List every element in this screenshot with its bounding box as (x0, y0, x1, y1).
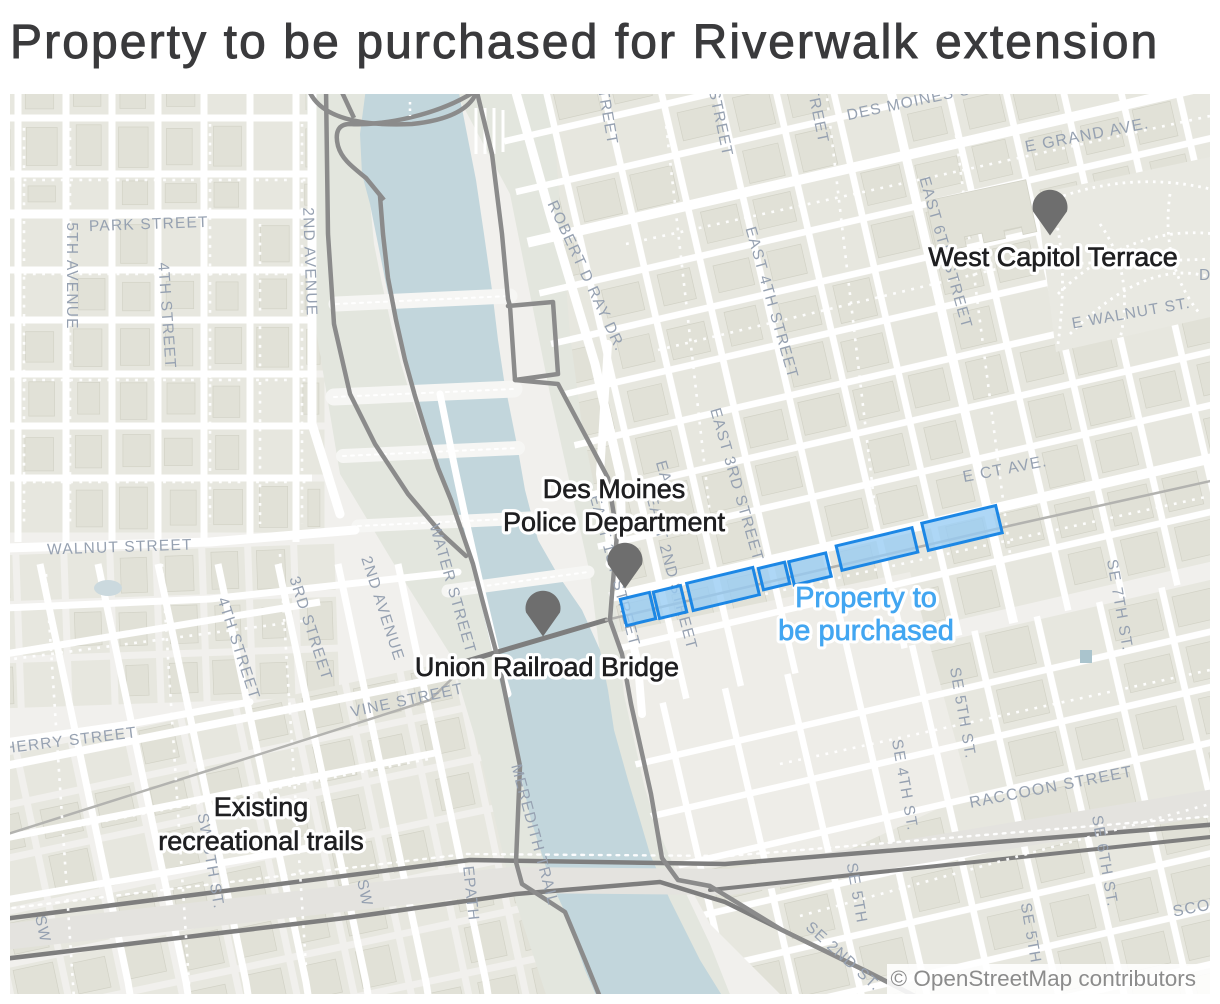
svg-text:West Capitol Terrace: West Capitol Terrace (928, 242, 1178, 272)
svg-text:5TH AVENUE: 5TH AVENUE (63, 222, 80, 329)
svg-text:© OpenStreetMap contributors: © OpenStreetMap contributors (891, 966, 1196, 991)
svg-text:Property to: Property to (795, 582, 937, 614)
svg-text:Existing: Existing (214, 792, 309, 822)
svg-text:recreational trails: recreational trails (158, 826, 364, 856)
svg-text:be purchased: be purchased (778, 615, 954, 647)
svg-text:Union Railroad Bridge: Union Railroad Bridge (415, 652, 679, 682)
svg-text:Des Moines: Des Moines (543, 474, 686, 504)
svg-text:Police Department: Police Department (503, 507, 726, 537)
svg-text:DI: DI (1199, 267, 1210, 284)
